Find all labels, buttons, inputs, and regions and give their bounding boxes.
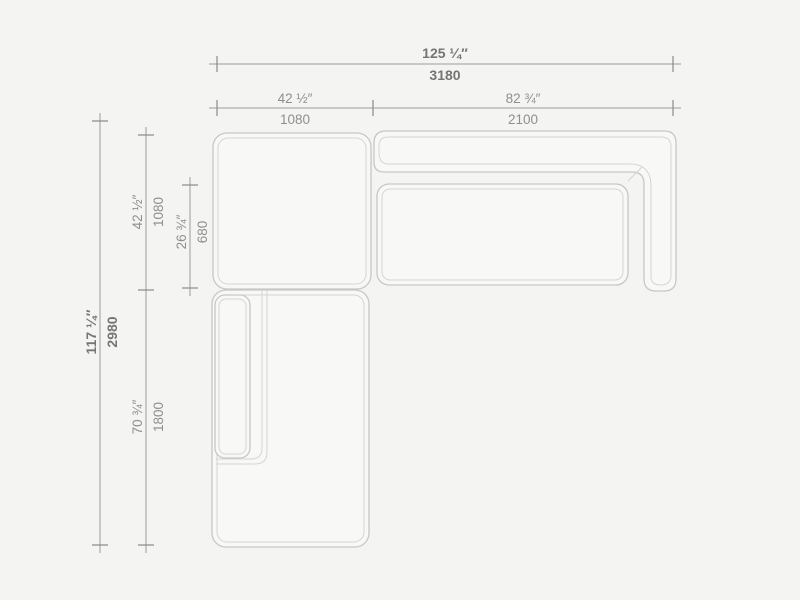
dim-label-inches: 26 ¾″ [174,214,189,249]
chaise-armrest-cushion-outline [215,295,250,458]
corner-module [213,133,371,289]
dim-label-inches: 70 ¾″ [130,399,145,434]
sofa-dimension-drawing: 125 ¼″ 3180 42 ½″ 1080 82 ¾″ 2100 117 ¼″… [0,0,800,600]
corner-module-outline [213,133,371,289]
right-seat-cushion-outline [377,184,628,285]
chaise-module [212,290,369,547]
dim-label-inches: 117 ¼″ [83,309,99,354]
dim-sub-depths: 42 ½″ 1080 70 ¾″ 1800 [130,127,166,553]
dim-label-mm: 3180 [429,67,460,83]
dim-label-mm: 1800 [151,402,166,432]
dim-label-inches: 125 ¼″ [422,45,468,61]
right-module [374,131,676,291]
dim-seat-depth: 26 ¾″ 680 [174,177,210,296]
dim-label-inches: 82 ¾″ [506,91,541,106]
dim-label-mm: 2980 [104,316,120,347]
dim-label-mm: 2100 [508,112,538,127]
dim-label-mm: 1080 [151,197,166,227]
drawing-svg: 125 ¼″ 3180 42 ½″ 1080 82 ¾″ 2100 117 ¼″… [0,0,800,600]
dim-total-depth: 117 ¼″ 2980 [83,113,120,553]
dim-label-inches: 42 ½″ [130,194,145,229]
dim-label-mm: 680 [195,221,210,244]
dim-label-mm: 1080 [280,112,310,127]
dim-total-width: 125 ¼″ 3180 [209,45,681,83]
dim-sub-widths: 42 ½″ 1080 82 ¾″ 2100 [209,91,681,127]
dim-label-inches: 42 ½″ [278,91,313,106]
